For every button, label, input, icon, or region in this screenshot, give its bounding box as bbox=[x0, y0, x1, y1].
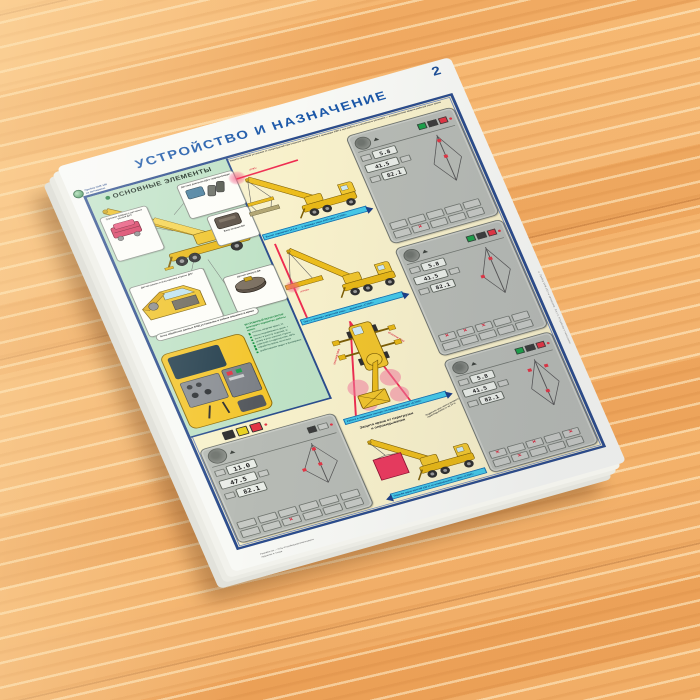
indicator-dark bbox=[427, 119, 438, 127]
panel-key bbox=[409, 265, 422, 273]
alarm-x-icon: ✕ bbox=[568, 430, 574, 435]
indicator-green bbox=[465, 234, 476, 242]
alarm-x-icon: ✕ bbox=[495, 451, 501, 456]
alarm-dot bbox=[546, 341, 550, 344]
speaker-mark-icon bbox=[421, 249, 428, 253]
alarm-dot bbox=[329, 423, 333, 426]
panel-key bbox=[214, 469, 227, 477]
indicator-red bbox=[486, 228, 497, 236]
panel-key bbox=[360, 153, 373, 161]
alarm-x-icon: ✕ bbox=[418, 225, 424, 230]
panel-key bbox=[224, 491, 237, 499]
alarm-x-icon: ✕ bbox=[289, 518, 295, 523]
azimuth-sensor-illustration bbox=[227, 270, 275, 300]
crane-schematic bbox=[414, 126, 479, 190]
panel-key bbox=[457, 378, 470, 386]
alarm-x-icon: ✕ bbox=[445, 334, 451, 339]
alarm-x-icon: ✕ bbox=[463, 329, 469, 334]
crane-schematic bbox=[463, 238, 528, 302]
indicator-green bbox=[416, 122, 427, 130]
panel-key bbox=[467, 399, 480, 407]
alarm-dot bbox=[264, 423, 268, 426]
indicator-dark bbox=[306, 425, 317, 433]
panel-key bbox=[497, 379, 510, 387]
speaker-mark-icon bbox=[229, 450, 236, 454]
panel-key bbox=[257, 469, 270, 477]
indicator-green bbox=[514, 347, 525, 355]
speaker-mark-icon bbox=[470, 361, 477, 365]
panel-key bbox=[418, 287, 431, 295]
panel-key bbox=[399, 154, 412, 162]
panel-key bbox=[369, 174, 382, 182]
indicator-dark bbox=[524, 344, 535, 352]
indicator-dark bbox=[476, 231, 487, 239]
indicator-red bbox=[437, 116, 448, 124]
wood-table-photo: 2 УСТРОЙСТВО И НАЗНАЧЕНИЕ Прибор ОНК-140… bbox=[0, 0, 700, 700]
crane-schematic bbox=[512, 351, 577, 415]
indicator-red bbox=[535, 341, 546, 349]
yellow-button bbox=[235, 426, 249, 437]
red-button bbox=[249, 422, 263, 433]
panel-key bbox=[317, 422, 330, 430]
alarm-x-icon: ✕ bbox=[517, 454, 523, 459]
panel-key bbox=[448, 266, 461, 274]
alarm-x-icon: ✕ bbox=[481, 324, 487, 329]
black-button bbox=[222, 429, 236, 440]
speaker-mark-icon bbox=[373, 137, 380, 141]
alarm-x-icon: ✕ bbox=[532, 440, 538, 445]
crane-scenario-lep bbox=[231, 146, 366, 235]
alarm-dot bbox=[449, 117, 453, 120]
alarm-dot bbox=[497, 229, 501, 232]
